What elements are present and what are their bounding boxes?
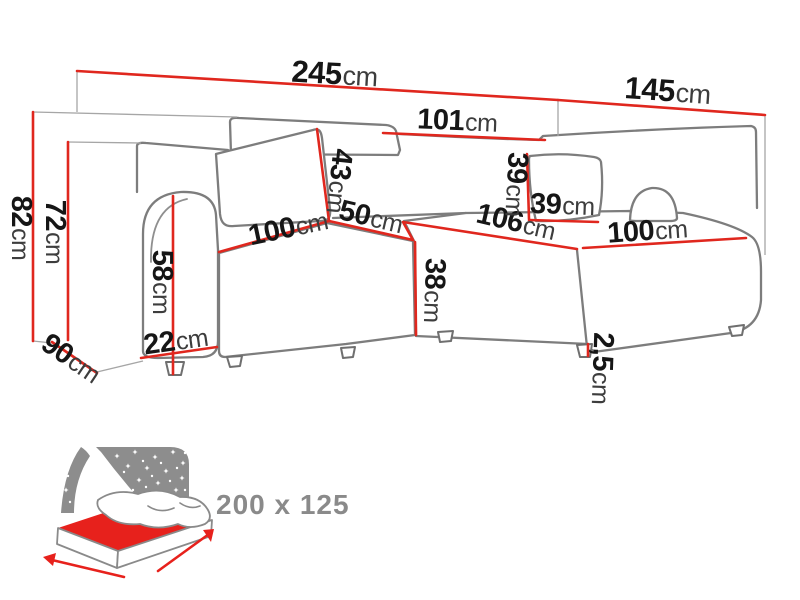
label-pillow-height: 39cm — [498, 151, 533, 217]
label-seat-height: 38cm — [417, 257, 451, 323]
label-total-depth: 145cm — [623, 70, 711, 111]
diagram-canvas: 245cm 145cm 101cm 43cm 50cm 100cm 38cm 1… — [0, 0, 800, 600]
moon-crescent-shape — [61, 447, 90, 513]
sleeping-area-size-label: 200 x 125 — [216, 489, 350, 520]
label-back-section-width: 101cm — [417, 103, 499, 138]
sofa-dimension-diagram: 245cm 145cm 101cm 43cm 50cm 100cm 38cm 1… — [0, 0, 800, 600]
guide-line — [33, 112, 237, 117]
sofa-leg — [166, 362, 184, 375]
sofa-leg — [729, 325, 744, 336]
sofa-drawing — [137, 118, 761, 375]
guide-line — [68, 142, 141, 143]
label-armrest-height: 58cm — [146, 250, 178, 315]
label-side-depth: 90cm — [35, 327, 106, 390]
sofa-back-panel-left-edge — [137, 143, 228, 192]
sleeping-area-icon: 200 x 125 — [43, 447, 350, 577]
sofa-leg — [341, 347, 355, 358]
label-total-width: 245cm — [291, 54, 379, 94]
length-arrow-head — [43, 553, 56, 566]
label-total-height: 82cm — [5, 196, 37, 261]
sofa-leg — [227, 356, 242, 367]
dim-line-seat-height — [415, 242, 416, 335]
label-pillow-width: 39cm — [529, 188, 595, 222]
sofa-leg — [438, 331, 453, 342]
label-frame-height: 72cm — [39, 200, 71, 265]
label-leg-height: 2,5cm — [585, 332, 619, 405]
sofa-chaise-body — [404, 211, 761, 351]
